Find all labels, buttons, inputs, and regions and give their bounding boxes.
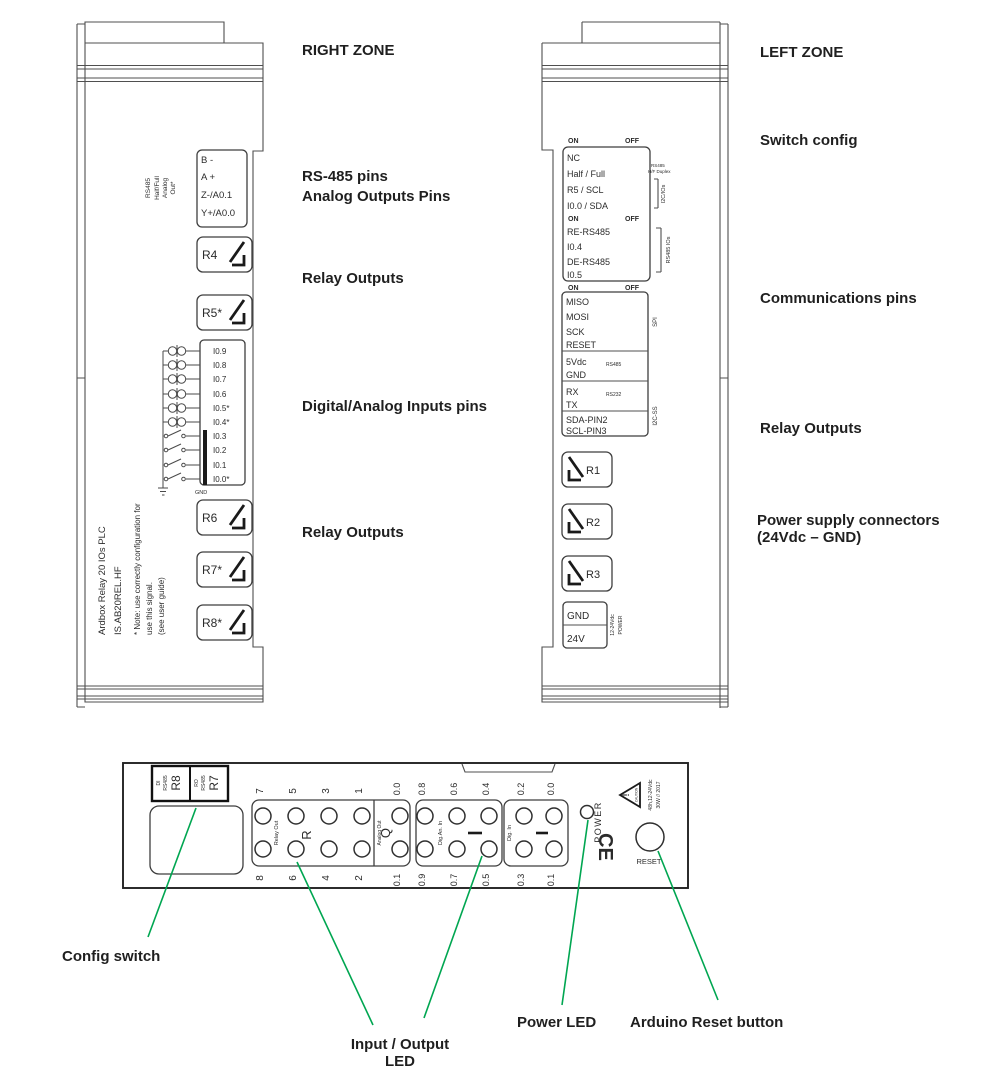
- digan-num: 0.4: [481, 783, 491, 796]
- header-line: Analog: [162, 178, 169, 199]
- header-line: Half/Full: [154, 176, 161, 200]
- inputs-block: I0.9 I0.8 I0.7 I0.6 I0.5* I0.4* I0.3 I0.…: [195, 340, 245, 496]
- analog-led: [392, 808, 408, 824]
- power-pin: 24V: [567, 634, 585, 645]
- arduino-reset-label: Arduino Reset button: [630, 1014, 783, 1031]
- digan-label: Dig.An. In: [438, 821, 444, 845]
- device-side-text: Ardbox Relay 20 IOs PLC IS.AB20REL.HF * …: [97, 503, 166, 635]
- relay-num: 3: [321, 788, 332, 794]
- dig-label: Dig. In: [507, 825, 513, 841]
- relay-label: R8*: [202, 616, 222, 630]
- reset-label: RESET: [636, 857, 661, 866]
- side-line: * Note: use correctly configuration for: [133, 503, 142, 635]
- relay-label: R4: [202, 248, 218, 262]
- dip-row: RE-RS485: [567, 227, 610, 237]
- relay-label: R1: [586, 465, 600, 477]
- comm-pin: SCL-PIN3: [566, 426, 607, 436]
- pin-label: Z-/A0.1: [201, 190, 232, 201]
- digan-num: 0.7: [449, 874, 459, 887]
- pin-label: Y+/A0.0: [201, 208, 235, 219]
- dip-row: I0.5: [567, 270, 582, 280]
- dig-num: 0.1: [546, 874, 556, 887]
- tag-rs485-hf: RS485: [651, 163, 665, 168]
- relay-outputs-label-2: Relay Outputs: [302, 524, 404, 541]
- side-line: IS.AB20REL.HF: [113, 566, 124, 635]
- tag-spi: SPI: [653, 317, 659, 327]
- left-zone-device: ON OFF NC Half / Full R5 / SCL I0.0 / SD…: [530, 8, 740, 710]
- relay-out-label: Relay Out: [274, 820, 280, 845]
- label-r8: R8: [169, 775, 183, 791]
- comm-pin: GND: [566, 370, 587, 380]
- dip-row: NC: [567, 153, 580, 163]
- relay-r4: R4: [197, 237, 252, 272]
- dip-row: I0.4: [567, 242, 582, 252]
- caution-label: ! CAUTION 48h,12-24Vdc 30W // 2017: [620, 779, 662, 811]
- analog-outputs-pins-label: Analog Outputs Pins: [302, 188, 450, 205]
- rs485-pins-label: RS-485 pins: [302, 168, 388, 185]
- dip-bracket-tags: RS485 H/F Duplex I2C/IOs RS485 IOs: [648, 163, 672, 272]
- side-line: use this signal.: [145, 582, 154, 635]
- relay-led-block: Relay Out R 7 5 3 1 8 6 4 2 Analog Out Q…: [252, 783, 410, 887]
- relay-outputs-label-1: Relay Outputs: [302, 270, 404, 287]
- relay-num: 1: [354, 788, 365, 794]
- dip-row: Half / Full: [567, 169, 605, 179]
- side-line: (see user guide): [157, 577, 166, 635]
- caution-rating: 48h,12-24Vdc: [648, 779, 654, 811]
- dip-row: DE-RS485: [567, 257, 610, 267]
- relay-r2: R2: [562, 504, 612, 539]
- relay-r5: R5*: [197, 295, 252, 330]
- input-schematic-symbols: [158, 345, 200, 495]
- input-pin-label: I0.8: [213, 361, 227, 370]
- dig-num: 0.2: [516, 783, 526, 796]
- power-led-label: Power LED: [517, 1014, 596, 1031]
- config-switch-label: Config switch: [62, 948, 160, 965]
- communications-block: MISO MOSI SCK RESET 5Vdc GND RS485 RX TX…: [562, 292, 659, 436]
- on-label: ON: [568, 138, 579, 145]
- digital-analog-in-led-block: Dig.An. In 0.8 0.6 0.4 0.9 0.7 0.5: [416, 783, 502, 887]
- communications-pins-label: Communications pins: [760, 290, 917, 307]
- digan-num: 0.6: [449, 783, 459, 796]
- tag-rs485-ios: RS485 IOs: [666, 236, 672, 263]
- config-switch-area: [150, 806, 243, 874]
- power-supply-line1: Power supply connectors: [757, 512, 940, 529]
- reset-button-group: RESET: [636, 823, 664, 866]
- switch-config-label: Switch config: [760, 132, 858, 149]
- ce-mark: CE: [594, 833, 616, 861]
- power-pin: GND: [567, 611, 589, 622]
- input-pin-label: I0.6: [213, 390, 227, 399]
- digital-analog-inputs-label: Digital/Analog Inputs pins: [302, 398, 487, 415]
- label-ro: RO: [194, 779, 200, 787]
- tag-power-voltage: 12-24Vdc: [610, 614, 616, 636]
- pin-label: A +: [201, 172, 215, 183]
- io-led-line2: LED: [330, 1053, 470, 1070]
- comm-pin: SDA-PIN2: [566, 415, 608, 425]
- tag-hf-duplex: H/F Duplex: [648, 169, 671, 174]
- relay-label: R5*: [202, 306, 222, 320]
- diagram-canvas: RS485 Half/Full Analog Out* B - A + Z-/A…: [0, 0, 992, 1091]
- tag-i2c-ss: I2C-SS: [653, 406, 659, 425]
- ground-symbol: [158, 488, 168, 495]
- dig-num: 0.0: [546, 783, 556, 796]
- digan-num: 0.9: [417, 874, 427, 887]
- header-line: Out*: [170, 181, 177, 194]
- input-pin-label: I0.2: [213, 446, 227, 455]
- off-label: OFF: [625, 216, 640, 223]
- tag-rs232: RS232: [606, 392, 622, 398]
- label-di: DI: [156, 781, 162, 786]
- relay-r8: R8*: [197, 605, 252, 640]
- reset-button-circle: [636, 823, 664, 851]
- comm-pin: RX: [566, 387, 579, 397]
- comm-pin: RESET: [566, 340, 597, 350]
- input-pin-label: I0.3: [213, 432, 227, 441]
- analog-led: [392, 841, 408, 857]
- input-pin-label: I0.0*: [213, 475, 229, 484]
- comm-pin: 5Vdc: [566, 357, 587, 367]
- relay-letter: R: [299, 830, 314, 839]
- relay-num: 4: [321, 875, 332, 881]
- comm-pin: TX: [566, 400, 578, 410]
- relay-num: 7: [255, 788, 266, 794]
- relay-num: 5: [288, 788, 299, 794]
- relay-label: R2: [586, 517, 600, 529]
- digital-in-led-block: Dig. In 0.2 0.0 0.3 0.1: [504, 783, 568, 887]
- left-zone-title: LEFT ZONE: [760, 44, 843, 61]
- dig-num: 0.3: [516, 874, 526, 887]
- caution-rating: 30W // 2017: [656, 781, 662, 808]
- power-led-circle: [581, 806, 594, 819]
- off-label: OFF: [625, 285, 640, 292]
- gnd-label: GND: [195, 490, 207, 496]
- label-r7: R7: [207, 775, 221, 791]
- input-pin-label: I0.9: [213, 347, 227, 356]
- relay-r1: R1: [562, 452, 612, 487]
- io-led-line1: Input / Output: [330, 1036, 470, 1053]
- dip-row: I0.0 / SDA: [567, 201, 608, 211]
- comm-pin: SCK: [566, 327, 585, 337]
- relay-num: 2: [354, 875, 365, 881]
- analog-letter: Q: [378, 828, 393, 838]
- input-pin-label: I0.5*: [213, 404, 229, 413]
- relay-r3: R3: [562, 556, 612, 591]
- relay-r6: R6: [197, 500, 252, 535]
- caution-exclamation: !: [621, 794, 631, 797]
- power-connector: GND 24V 12-24Vdc POWER: [563, 602, 624, 648]
- input-pin-label: I0.4*: [213, 418, 229, 427]
- front-panel: DI RS485 R8 RO RS485 R7 Relay Out R 7 5 …: [115, 755, 695, 895]
- io-led-label: Input / Output LED: [330, 1036, 470, 1070]
- relay-label: R6: [202, 511, 218, 525]
- pin-label: B -: [201, 155, 213, 166]
- relay-r7: R7*: [197, 552, 252, 587]
- rs485-analog-connector: B - A + Z-/A0.1 Y+/A0.0: [197, 150, 247, 227]
- power-supply-label: Power supply connectors (24Vdc – GND): [757, 512, 940, 546]
- analog-num: 0.1: [392, 874, 402, 887]
- caution-word: CAUTION: [635, 787, 639, 802]
- digan-num: 0.8: [417, 783, 427, 796]
- on-label: ON: [568, 285, 579, 292]
- comm-pin: MISO: [566, 297, 589, 307]
- rs485-terminal-label: DI RS485 R8 RO RS485 R7: [152, 766, 228, 801]
- digan-num: 0.5: [481, 874, 491, 887]
- relay-label: R3: [586, 569, 600, 581]
- tag-power: POWER: [618, 615, 624, 634]
- tag-i2c-ios: I2C/IOs: [661, 184, 667, 203]
- side-line: Ardbox Relay 20 IOs PLC: [97, 526, 108, 635]
- analog-num: 0.0: [392, 783, 402, 796]
- rs485-analog-header: RS485 Half/Full Analog Out*: [145, 176, 177, 200]
- power-supply-line2: (24Vdc – GND): [757, 529, 940, 546]
- inputs-marker-bar: [203, 430, 207, 485]
- header-line: RS485: [145, 178, 152, 198]
- on-label: ON: [568, 216, 579, 223]
- input-pin-label: I0.7: [213, 375, 227, 384]
- comm-pin: MOSI: [566, 312, 589, 322]
- relay-num: 6: [288, 875, 299, 881]
- off-label: OFF: [625, 138, 640, 145]
- relay-label: R7*: [202, 563, 222, 577]
- right-zone-device: RS485 Half/Full Analog Out* B - A + Z-/A…: [55, 8, 270, 710]
- relay-num: 8: [255, 875, 266, 881]
- right-zone-title: RIGHT ZONE: [302, 42, 395, 59]
- dip-switch-config: ON OFF NC Half / Full R5 / SCL I0.0 / SD…: [563, 138, 650, 292]
- dip-row: R5 / SCL: [567, 185, 604, 195]
- tag-rs485: RS485: [606, 362, 622, 368]
- relay-outputs-label-3: Relay Outputs: [760, 420, 862, 437]
- input-pin-label: I0.1: [213, 461, 227, 470]
